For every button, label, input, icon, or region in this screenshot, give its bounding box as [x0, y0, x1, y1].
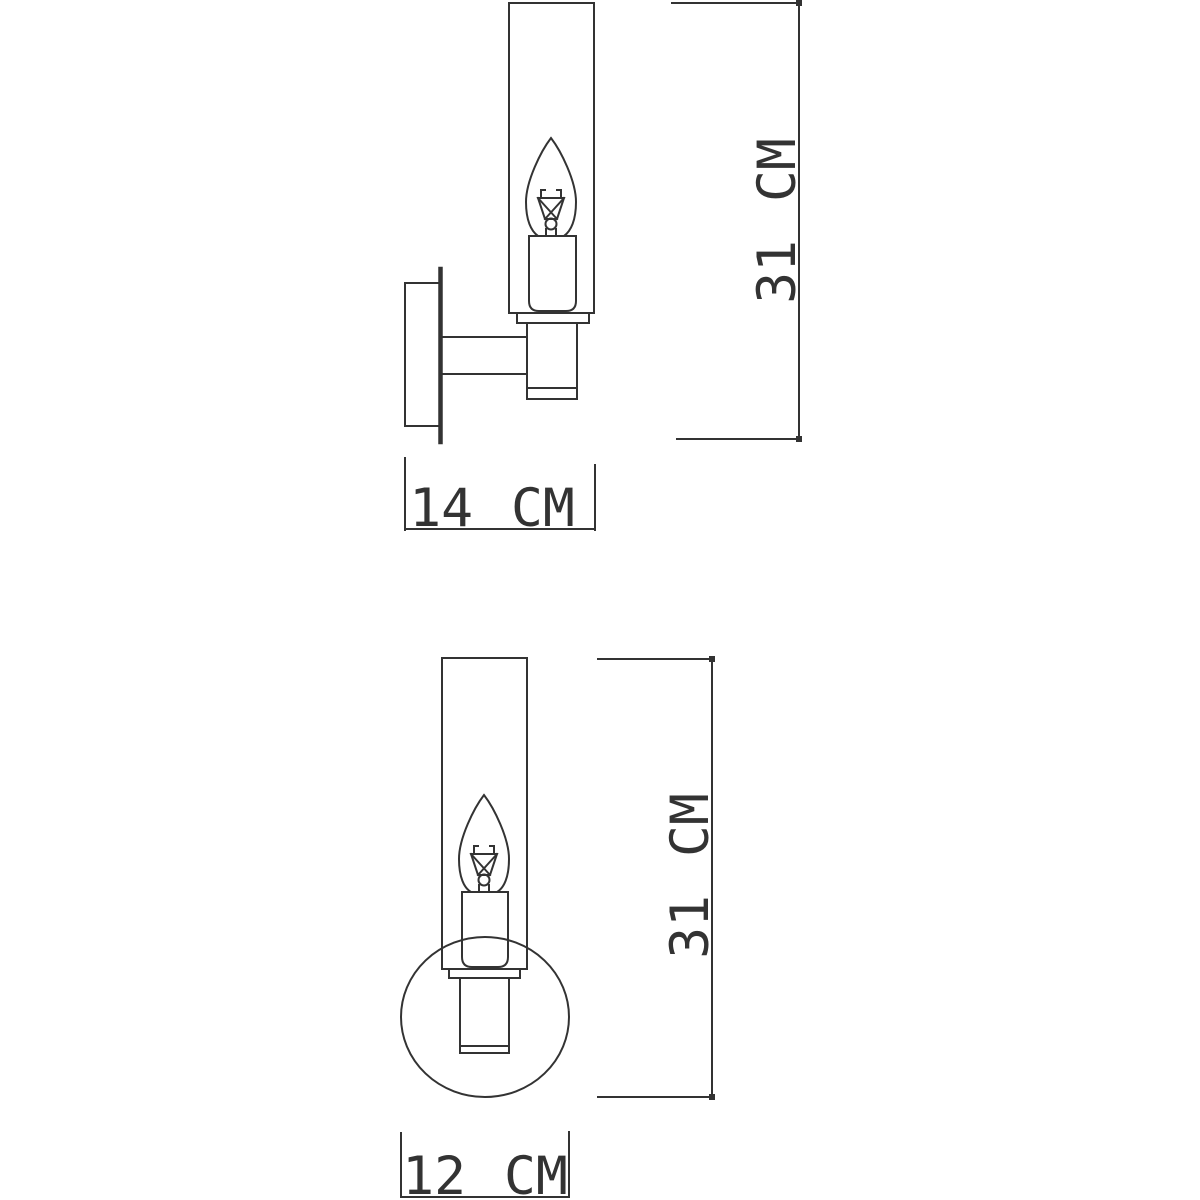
filament-bead-icon: [546, 219, 557, 230]
candle-bulb-front: [459, 795, 509, 892]
fixture-body-front: [460, 978, 509, 1053]
side-depth-dimension: 14 CM: [405, 458, 595, 539]
front-view: [401, 658, 569, 1097]
filament-prong-right-icon: [557, 190, 561, 197]
filament-prong-left-icon: [474, 846, 478, 853]
dimension-tick-top: [796, 0, 802, 6]
filament-bead-icon: [479, 875, 490, 886]
socket-flange-front: [449, 969, 520, 978]
front-height-dimension: 31 CM: [598, 656, 721, 1100]
bulb-filament-front: [471, 846, 497, 892]
lamp-socket-side: [529, 236, 576, 311]
candle-bulb-side: [526, 138, 576, 236]
dimension-tick-bottom: [796, 436, 802, 442]
dimension-tick-bottom: [709, 1094, 715, 1100]
socket-flange-side: [517, 313, 589, 323]
front-width-dimension: 12 CM: [401, 1132, 569, 1200]
wall-plate-side: [405, 283, 441, 426]
glass-tube-side: [509, 3, 594, 313]
side-depth-label: 14 CM: [409, 478, 575, 539]
side-height-dimension: 31 CM: [672, 0, 808, 442]
bulb-filament-side: [538, 190, 564, 236]
dimension-tick-top: [709, 656, 715, 662]
technical-drawing-page: 31 CM 14 CM: [0, 0, 1200, 1200]
backplate-circle-front: [401, 937, 569, 1097]
lamp-socket-front: [462, 892, 508, 967]
side-view: [405, 3, 594, 442]
filament-prong-left-icon: [541, 190, 545, 197]
front-height-label: 31 CM: [660, 793, 721, 959]
filament-prong-right-icon: [490, 846, 494, 853]
glass-tube-front: [442, 658, 527, 969]
front-width-label: 12 CM: [402, 1146, 568, 1200]
side-height-label: 31 CM: [747, 138, 808, 304]
wall-sconce-dimension-diagram: 31 CM 14 CM: [0, 0, 1200, 1200]
